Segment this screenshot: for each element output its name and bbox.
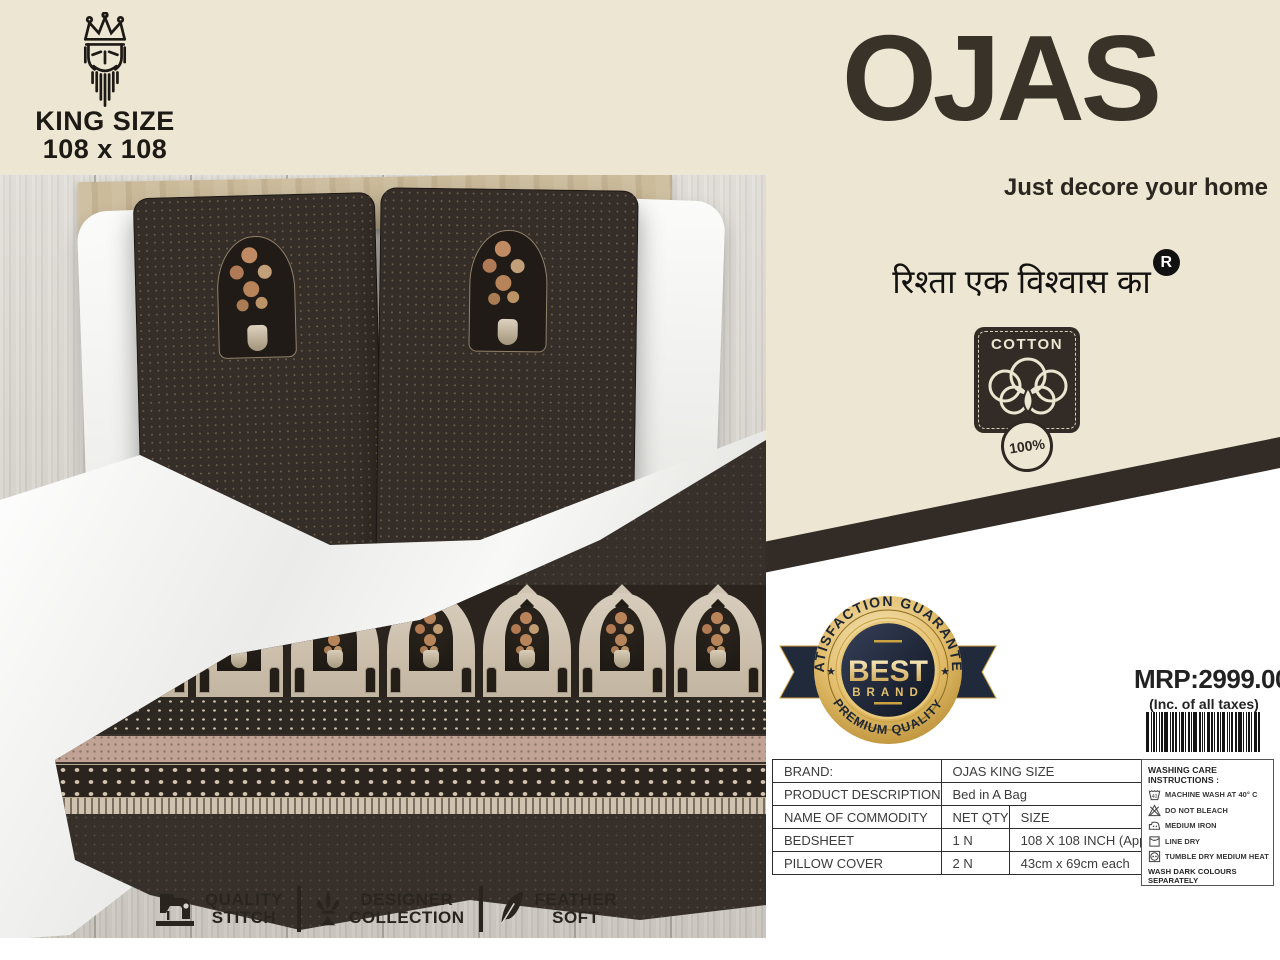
- row-qty: 2 N: [941, 852, 1009, 875]
- tax-note: (Inc. of all taxes): [1134, 696, 1274, 712]
- feature-line: STITCH: [205, 909, 283, 927]
- medium-iron-icon: [1148, 819, 1165, 832]
- feature-strip: QUALITY STITCH DESIGNER CO: [130, 883, 640, 935]
- size-label: KING SIZE: [20, 108, 190, 136]
- feature-label: DESIGNER COLLECTION: [349, 891, 465, 927]
- table-row: BEDSHEET 1 N 108 X 108 INCH (Approx): [773, 829, 1174, 852]
- bed-photo: QUALITY STITCH DESIGNER CO: [0, 175, 766, 938]
- best-brand-badge: SATISFACTION GUARANTEE PREMIUM QUALITY B…: [778, 582, 998, 758]
- care-footnote: WASH DARK COLOURS SEPARATELY: [1148, 867, 1269, 885]
- care-item: MEDIUM IRON: [1148, 819, 1269, 832]
- table-row: PILLOW COVER 2 N 43cm x 69cm each: [773, 852, 1174, 875]
- bedsheet-pink-band: [0, 734, 766, 764]
- badge-star-left: ★: [826, 666, 836, 678]
- do-not-bleach-icon: [1148, 804, 1165, 817]
- care-label: LINE DRY: [1165, 837, 1200, 846]
- feature-line: DESIGNER: [349, 891, 465, 909]
- machine-wash-icon: 40: [1148, 788, 1165, 801]
- feather-icon: [497, 890, 527, 928]
- care-item: DO NOT BLEACH: [1148, 804, 1269, 817]
- pillow-arch-motif: [216, 235, 297, 359]
- care-label: DO NOT BLEACH: [1165, 806, 1228, 815]
- feature-separator: [297, 886, 301, 932]
- cotton-label: COTTON: [974, 336, 1080, 353]
- pillow-arch-motif: [468, 229, 548, 352]
- badge-star-right: ★: [940, 666, 950, 678]
- price-block: MRP:2999.00/- (Inc. of all taxes): [1134, 664, 1274, 712]
- feature-label: QUALITY STITCH: [205, 891, 283, 927]
- care-instructions-box: WASHING CARE INSTRUCTIONS : 40 MACHINE W…: [1141, 759, 1274, 886]
- col-header: NET QTY: [941, 806, 1009, 829]
- row-label: PRODUCT DESCRIPTION: [773, 783, 942, 806]
- brand-tagline: Just decore your home: [950, 174, 1268, 202]
- size-tag: KING SIZE 108 x 108: [20, 12, 190, 163]
- row-label: BRAND:: [773, 760, 942, 783]
- brand-name: OJAS: [810, 14, 1190, 142]
- table-row: BRAND: OJAS KING SIZE: [773, 760, 1174, 783]
- mrp-value: MRP:2999.00/-: [1134, 664, 1274, 695]
- col-header: NAME OF COMMODITY: [773, 806, 942, 829]
- packaging-artwork: KING SIZE 108 x 108 OJAS Just decore you…: [0, 0, 1280, 960]
- feature-item: QUALITY STITCH: [153, 890, 283, 928]
- row-value: OJAS KING SIZE: [941, 760, 1173, 783]
- size-dimensions: 108 x 108: [20, 136, 190, 164]
- row-label: BEDSHEET: [773, 829, 942, 852]
- table-row: PRODUCT DESCRIPTION Bed in A Bag: [773, 783, 1174, 806]
- care-item: TUMBLE DRY MEDIUM HEAT: [1148, 850, 1269, 863]
- fleur-de-lis-icon: [315, 890, 341, 928]
- feature-line: SOFT: [535, 909, 618, 927]
- spec-table: BRAND: OJAS KING SIZE PRODUCT DESCRIPTIO…: [772, 759, 1174, 875]
- care-label: TUMBLE DRY MEDIUM HEAT: [1165, 852, 1269, 861]
- feature-separator: [479, 886, 483, 932]
- care-label: MEDIUM IRON: [1165, 821, 1217, 830]
- row-qty: 1 N: [941, 829, 1009, 852]
- row-value: Bed in A Bag: [941, 783, 1173, 806]
- table-header-row: NAME OF COMMODITY NET QTY SIZE: [773, 806, 1174, 829]
- bedsheet-thin-band: [0, 798, 766, 814]
- barcode: [1146, 712, 1260, 752]
- feature-line: FEATHER: [535, 891, 618, 909]
- bedsheet-motif-band: [0, 764, 766, 798]
- feature-line: COLLECTION: [349, 909, 465, 927]
- svg-text:40: 40: [1152, 794, 1158, 800]
- hindi-slogan-text: रिश्ता एक विश्वास का: [892, 263, 1151, 300]
- row-label: PILLOW COVER: [773, 852, 942, 875]
- badge-center-bottom: BRAND: [852, 687, 924, 699]
- line-dry-icon: [1148, 835, 1165, 848]
- feature-item: DESIGNER COLLECTION: [315, 890, 465, 928]
- care-item: LINE DRY: [1148, 835, 1269, 848]
- sewing-machine-icon: [153, 890, 197, 928]
- feature-line: QUALITY: [205, 891, 283, 909]
- care-title: WASHING CARE INSTRUCTIONS :: [1148, 765, 1269, 785]
- care-label: MACHINE WASH AT 40° C: [1165, 790, 1258, 799]
- tumble-dry-icon: [1148, 850, 1165, 863]
- king-crown-icon: [76, 12, 134, 108]
- feature-item: FEATHER SOFT: [497, 890, 618, 928]
- hindi-slogan: रिश्ता एक विश्वास काR: [840, 258, 1230, 303]
- feature-label: FEATHER SOFT: [535, 891, 618, 927]
- badge-center-top: BEST: [848, 655, 928, 688]
- registered-mark: R: [1153, 249, 1180, 276]
- care-item: 40 MACHINE WASH AT 40° C: [1148, 788, 1269, 801]
